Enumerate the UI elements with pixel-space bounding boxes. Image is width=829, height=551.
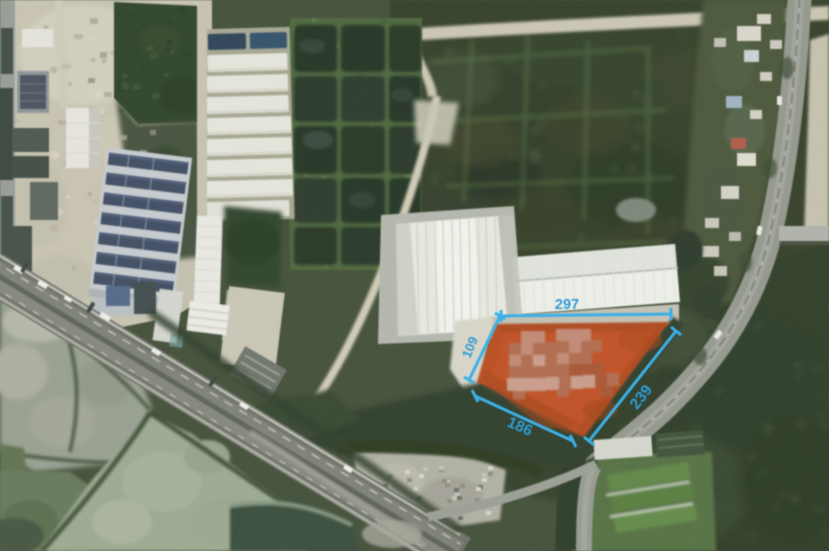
svg-text:297: 297 — [555, 297, 579, 313]
